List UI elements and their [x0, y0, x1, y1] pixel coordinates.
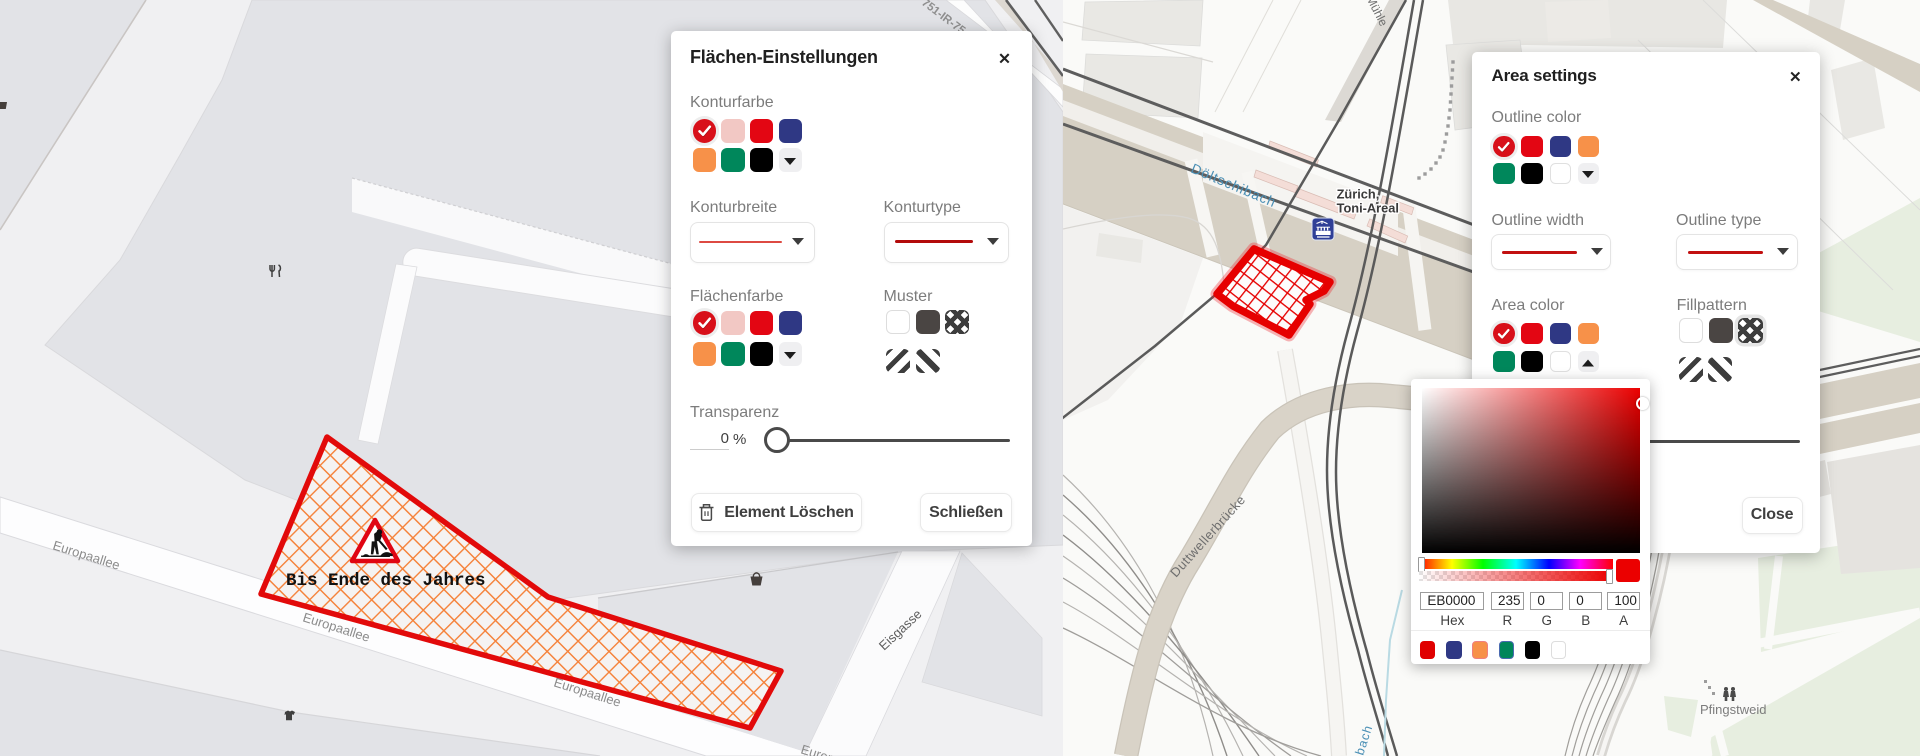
svg-text:Pfingstweid: Pfingstweid	[1700, 702, 1766, 717]
svg-text:Bis Ende des Jahres: Bis Ende des Jahres	[286, 571, 486, 591]
svg-text:Toni-Areal: Toni-Areal	[1337, 201, 1399, 216]
svg-text:Zürich,: Zürich,	[1337, 187, 1380, 202]
